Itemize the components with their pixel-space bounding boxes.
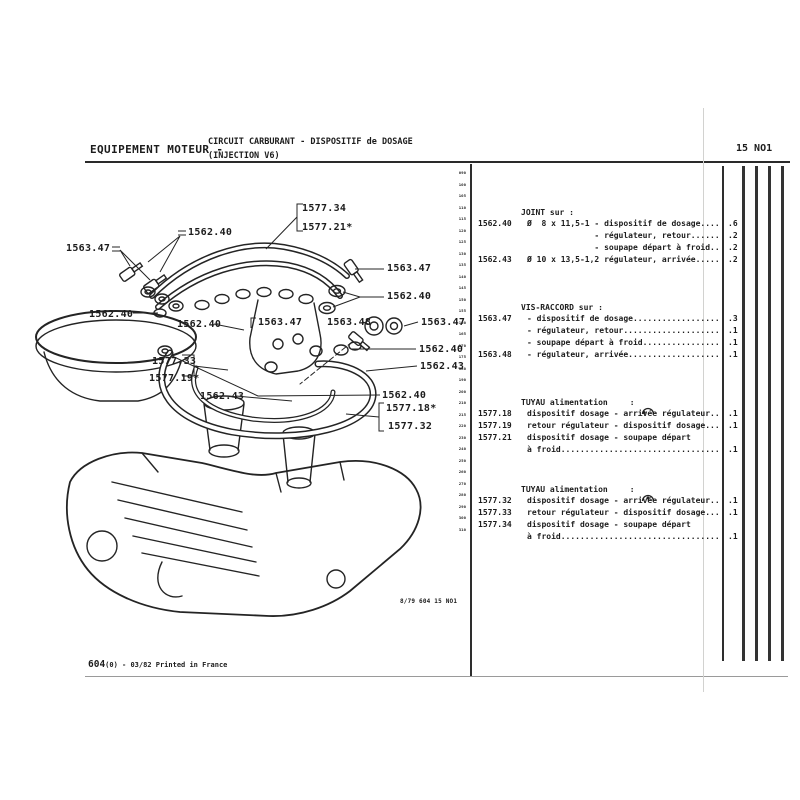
part-quantity: .6 <box>728 219 738 228</box>
part-callout: 1562.40 <box>188 227 232 238</box>
part-callout: 1562.40 <box>177 319 221 330</box>
margin-marker: 125 <box>452 239 466 244</box>
margin-marker-strip: 0901001051101151201251301351401451501551… <box>452 0 468 800</box>
hose-curve-icon <box>611 485 627 494</box>
section-header-joint: JOINT sur : <box>470 207 574 218</box>
parts-row: 1577.21 dispositif dosage - soupape dépa… <box>470 433 746 444</box>
part-description: à froid................................. <box>527 445 720 454</box>
margin-marker: 190 <box>452 377 466 382</box>
part-callout: 1577.32 <box>388 421 432 432</box>
part-quantity: .1 <box>728 445 738 454</box>
section-header-label: VIS-RACCORD sur : <box>521 303 603 312</box>
parts-row: - régulateur, retour....................… <box>470 326 746 337</box>
margin-marker: 160 <box>452 320 466 325</box>
part-quantity: .2 <box>728 243 738 252</box>
parts-row: 1577.34 dispositif dosage - soupape dépa… <box>470 520 746 531</box>
part-description: retour régulateur - dispositif dosage... <box>527 421 720 430</box>
part-description: - dispositif de dosage.................. <box>527 314 720 323</box>
print-reference: 8/79 604 15 NO1 <box>400 598 457 605</box>
part-callout: 1562.40 <box>382 390 426 401</box>
parts-row: 1562.43 Ø 10 x 13,5-1,2 régulateur, arri… <box>470 255 746 266</box>
section-header-label: TUYAU alimentation <box>521 398 608 407</box>
part-callout: 1577.19* <box>149 373 200 384</box>
part-quantity: .1 <box>728 532 738 541</box>
part-description: - soupape départ à froid................ <box>527 338 720 347</box>
margin-marker: 165 <box>452 331 466 336</box>
part-callout: 1577.33 <box>152 356 196 367</box>
part-number: 1577.33 <box>478 508 512 517</box>
part-callout: 1563.47 <box>387 263 431 274</box>
document-reference-number: 604 <box>88 659 105 670</box>
part-number: 1577.19 <box>478 421 512 430</box>
margin-marker: 100 <box>452 182 466 187</box>
engine-drawing <box>36 245 421 616</box>
part-quantity: .1 <box>728 350 738 359</box>
part-description: - régulateur, arrivée................... <box>527 350 720 359</box>
margin-marker: 280 <box>452 492 466 497</box>
parts-row: - soupape départ à froid................… <box>470 338 746 349</box>
part-description: dispositif dosage - soupape départ <box>527 520 691 529</box>
margin-marker: 105 <box>452 193 466 198</box>
parts-row: 1577.33 retour régulateur - dispositif d… <box>470 508 746 519</box>
parts-catalog-page: EQUIPEMENT MOTEUR - CIRCUIT CARBURANT - … <box>0 0 800 800</box>
document-reference-details: (0) - 03/82 Printed in France <box>105 661 227 669</box>
part-quantity: .2 <box>728 255 738 264</box>
margin-marker: 240 <box>452 446 466 451</box>
margin-marker: 220 <box>452 423 466 428</box>
part-quantity: .3 <box>728 314 738 323</box>
part-description: Ø 10 x 13,5-1,2 régulateur, arrivée..... <box>527 255 720 264</box>
document-reference: 604(0) - 03/82 Printed in France <box>88 652 227 671</box>
part-number: 1562.43 <box>478 255 512 264</box>
part-number: 1577.34 <box>478 520 512 529</box>
part-description: - régulateur, retour...... <box>527 231 720 240</box>
section-header-tuyau-1: TUYAU alimentation : <box>470 397 635 408</box>
parts-row: 1563.48 - régulateur, arrivée...........… <box>470 350 746 361</box>
part-callout: 1563.47 <box>258 317 302 328</box>
part-callout: 1577.21* <box>302 222 353 233</box>
margin-marker: 175 <box>452 354 466 359</box>
part-callout: 1577.18* <box>386 403 437 414</box>
section-header-tuyau-2: TUYAU alimentation : <box>470 484 635 495</box>
margin-marker: 140 <box>452 274 466 279</box>
margin-marker: 145 <box>452 285 466 290</box>
part-number: 1563.48 <box>478 350 512 359</box>
margin-marker: 120 <box>452 228 466 233</box>
margin-marker: 250 <box>452 458 466 463</box>
margin-marker: 135 <box>452 262 466 267</box>
part-quantity: .1 <box>728 496 738 505</box>
section-header-colon: : <box>630 485 635 494</box>
parts-row: 1577.19 retour régulateur - dispositif d… <box>470 421 746 432</box>
margin-marker: 260 <box>452 469 466 474</box>
part-number: 1577.21 <box>478 433 512 442</box>
part-quantity: .1 <box>728 326 738 335</box>
margin-marker: 270 <box>452 481 466 486</box>
parts-row: 1577.32 dispositif dosage - arrivée régu… <box>470 496 746 507</box>
parts-row: à froid.................................… <box>470 445 746 456</box>
part-quantity: .2 <box>728 231 738 240</box>
parts-row: - régulateur, retour...... .2 <box>470 231 746 242</box>
margin-marker: 290 <box>452 504 466 509</box>
parts-row: 1562.40 Ø 8 x 11,5-1 - dispositif de dos… <box>470 219 746 230</box>
part-description: dispositif dosage - arrivée régulateur.. <box>527 496 720 505</box>
part-description: Ø 8 x 11,5-1 - dispositif de dosage.... <box>527 219 720 228</box>
part-number: 1563.47 <box>478 314 512 323</box>
margin-marker: 170 <box>452 343 466 348</box>
part-description: dispositif dosage - arrivée régulateur.. <box>527 409 720 418</box>
margin-marker: 155 <box>452 308 466 313</box>
part-description: retour régulateur - dispositif dosage... <box>527 508 720 517</box>
margin-marker: 115 <box>452 216 466 221</box>
part-callout: 1562.43 <box>200 391 244 402</box>
section-header-label: JOINT sur : <box>521 208 574 217</box>
margin-marker: 180 <box>452 366 466 371</box>
margin-marker: 310 <box>452 527 466 532</box>
parts-row: 1577.18 dispositif dosage - arrivée régu… <box>470 409 746 420</box>
parts-row: 1563.47 - dispositif de dosage..........… <box>470 314 746 325</box>
part-callout: 1563.48 <box>327 317 371 328</box>
margin-marker: 300 <box>452 515 466 520</box>
part-callout: 1562.40 <box>387 291 431 302</box>
part-number: 1562.40 <box>478 219 512 228</box>
part-number: 1577.32 <box>478 496 512 505</box>
section-header-colon: : <box>630 398 635 407</box>
parts-row: - soupape départ à froid.. .2 <box>470 243 746 254</box>
margin-marker: 210 <box>452 400 466 405</box>
part-callout: 1577.34 <box>302 203 346 214</box>
margin-marker: 130 <box>452 251 466 256</box>
hose-curve-icon <box>611 398 627 407</box>
margin-marker: 090 <box>452 170 466 175</box>
parts-row: à froid.................................… <box>470 532 746 543</box>
part-quantity: .1 <box>728 421 738 430</box>
part-callout: 1563.47 <box>66 243 110 254</box>
section-header-label: TUYAU alimentation <box>521 485 608 494</box>
part-quantity: .1 <box>728 338 738 347</box>
margin-marker: 110 <box>452 205 466 210</box>
part-callout: 1562.40 <box>89 309 133 320</box>
margin-marker: 215 <box>452 412 466 417</box>
part-description: dispositif dosage - soupape départ <box>527 433 691 442</box>
section-header-vis-raccord: VIS-RACCORD sur : <box>470 302 603 313</box>
part-description: - soupape départ à froid.. <box>527 243 720 252</box>
part-quantity: .1 <box>728 508 738 517</box>
part-description: à froid................................. <box>527 532 720 541</box>
margin-marker: 200 <box>452 389 466 394</box>
margin-marker: 230 <box>452 435 466 440</box>
part-description: - régulateur, retour.................... <box>527 326 720 335</box>
part-number: 1577.18 <box>478 409 512 418</box>
part-quantity: .1 <box>728 409 738 418</box>
margin-marker: 150 <box>452 297 466 302</box>
